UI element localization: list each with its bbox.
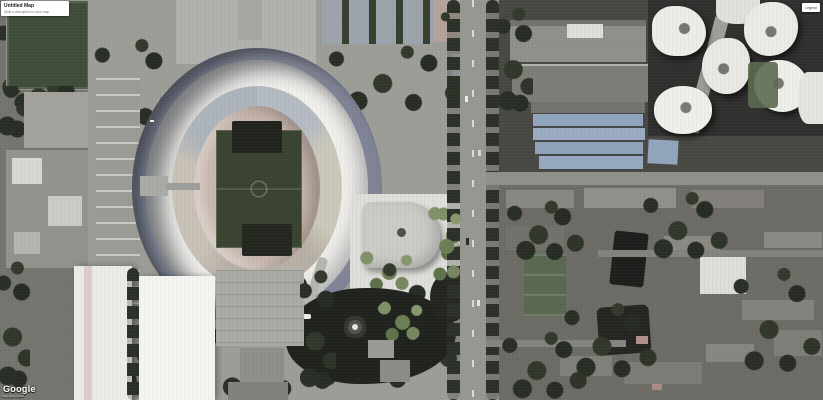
car: [466, 238, 469, 245]
west-gate-building: [140, 176, 168, 196]
cross-street-east: [486, 172, 823, 185]
pink-building: [652, 384, 662, 390]
blue-warehouse-roof: [535, 142, 643, 154]
road-lane-line: [472, 0, 474, 400]
tree-line: [127, 268, 139, 400]
tree-cluster: [499, 330, 589, 400]
tree-cluster: [640, 190, 730, 260]
google-logo[interactable]: Google: [3, 384, 36, 394]
gray-warehouse-roof: [531, 102, 645, 113]
lily-pads: [374, 296, 426, 344]
tree-cluster: [499, 0, 533, 120]
west-gate-walkway: [166, 183, 200, 190]
lawn: [748, 62, 778, 108]
satellite-map-canvas[interactable]: [0, 0, 823, 400]
white-tower: [798, 72, 823, 124]
map-subtitle: Write a description for your map: [4, 10, 66, 14]
blue-warehouse-roof: [533, 114, 643, 126]
legend-button[interactable]: Legend: [802, 3, 820, 12]
tree-cluster: [505, 200, 585, 260]
map-attribution: Map data ©2024: [2, 394, 24, 398]
pavilion-roof: [380, 360, 410, 382]
building-roof: [12, 158, 42, 184]
building-roof: [228, 382, 288, 400]
map-embed-viewport: Untitled Map Write a description for you…: [0, 0, 823, 400]
map-title-card[interactable]: Untitled Map Write a description for you…: [1, 1, 69, 16]
tree-cluster-light: [428, 186, 462, 296]
exhibition-hall: [139, 276, 215, 400]
blue-warehouse-roof: [533, 128, 645, 140]
plaza-access-road: [238, 0, 262, 40]
car: [478, 150, 481, 156]
white-shed: [567, 24, 603, 38]
hall-pink-strip: [84, 266, 92, 400]
exhibition-hall: [74, 266, 132, 400]
blue-warehouse-roof: [647, 139, 678, 165]
white-tower: [654, 86, 712, 134]
pavilion-roof: [368, 340, 394, 358]
tennis-courts: [322, 0, 434, 44]
legend-button-label: Legend: [805, 6, 816, 10]
car: [150, 120, 154, 122]
parking-lot: [216, 270, 304, 346]
building-roof: [24, 92, 88, 148]
fountain: [352, 324, 358, 330]
map-title: Untitled Map: [4, 3, 66, 9]
building-roof: [240, 348, 284, 382]
tree-cluster: [0, 250, 30, 400]
blue-warehouse-roof: [539, 156, 643, 169]
tree-cluster: [730, 260, 823, 380]
north-stage-structure: [232, 121, 282, 153]
car: [465, 96, 468, 102]
round-skylight: [397, 228, 406, 237]
white-tower: [702, 38, 750, 94]
car: [477, 300, 480, 306]
apartment-roof: [764, 232, 822, 248]
building-roof: [48, 196, 82, 226]
tree-cluster: [300, 260, 336, 400]
white-tower: [652, 6, 706, 56]
